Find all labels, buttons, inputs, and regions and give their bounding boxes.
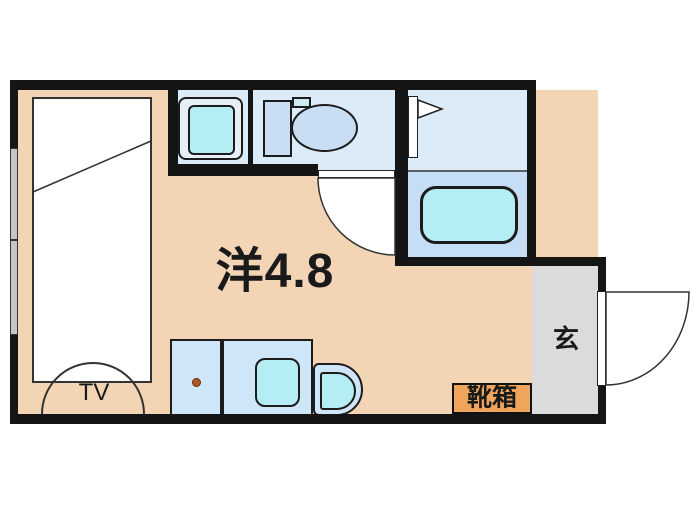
wall-bathroom-left — [395, 80, 408, 266]
toilet-bowl — [291, 104, 358, 152]
wall-above-entrance — [395, 257, 606, 266]
wall-right-upper — [598, 266, 606, 291]
entrance-door-swing — [606, 292, 689, 385]
floorplan-canvas: 洋4.8 玄 靴箱 TV — [0, 0, 700, 525]
shoe-box-label: 靴箱 — [467, 386, 517, 411]
wall-right-lower — [598, 386, 606, 424]
bathroom-upper-floor — [408, 90, 527, 171]
wall-bottom — [10, 414, 606, 424]
window-mullion — [10, 239, 18, 241]
bathtub — [420, 186, 518, 244]
entrance-label: 玄 — [553, 326, 579, 352]
tv-label: TV — [79, 381, 110, 405]
toilet-tank — [263, 100, 292, 157]
wall-sink-left — [168, 80, 178, 176]
toilet-door-leaf — [318, 170, 395, 178]
main-room-label: 洋4.8 — [216, 248, 335, 296]
wall-under-sink — [168, 164, 318, 176]
stove-burner-knob — [192, 378, 201, 387]
washbasin-bowl — [188, 105, 235, 155]
entrance-door-leaf — [597, 291, 606, 386]
kitchen-sink — [255, 358, 300, 407]
wall-top — [10, 80, 536, 90]
fold-door-panel — [408, 96, 418, 158]
wall-sink-toilet-divider — [248, 90, 253, 170]
bed — [32, 97, 152, 383]
window — [10, 148, 18, 335]
wall-bathroom-right — [527, 80, 536, 266]
